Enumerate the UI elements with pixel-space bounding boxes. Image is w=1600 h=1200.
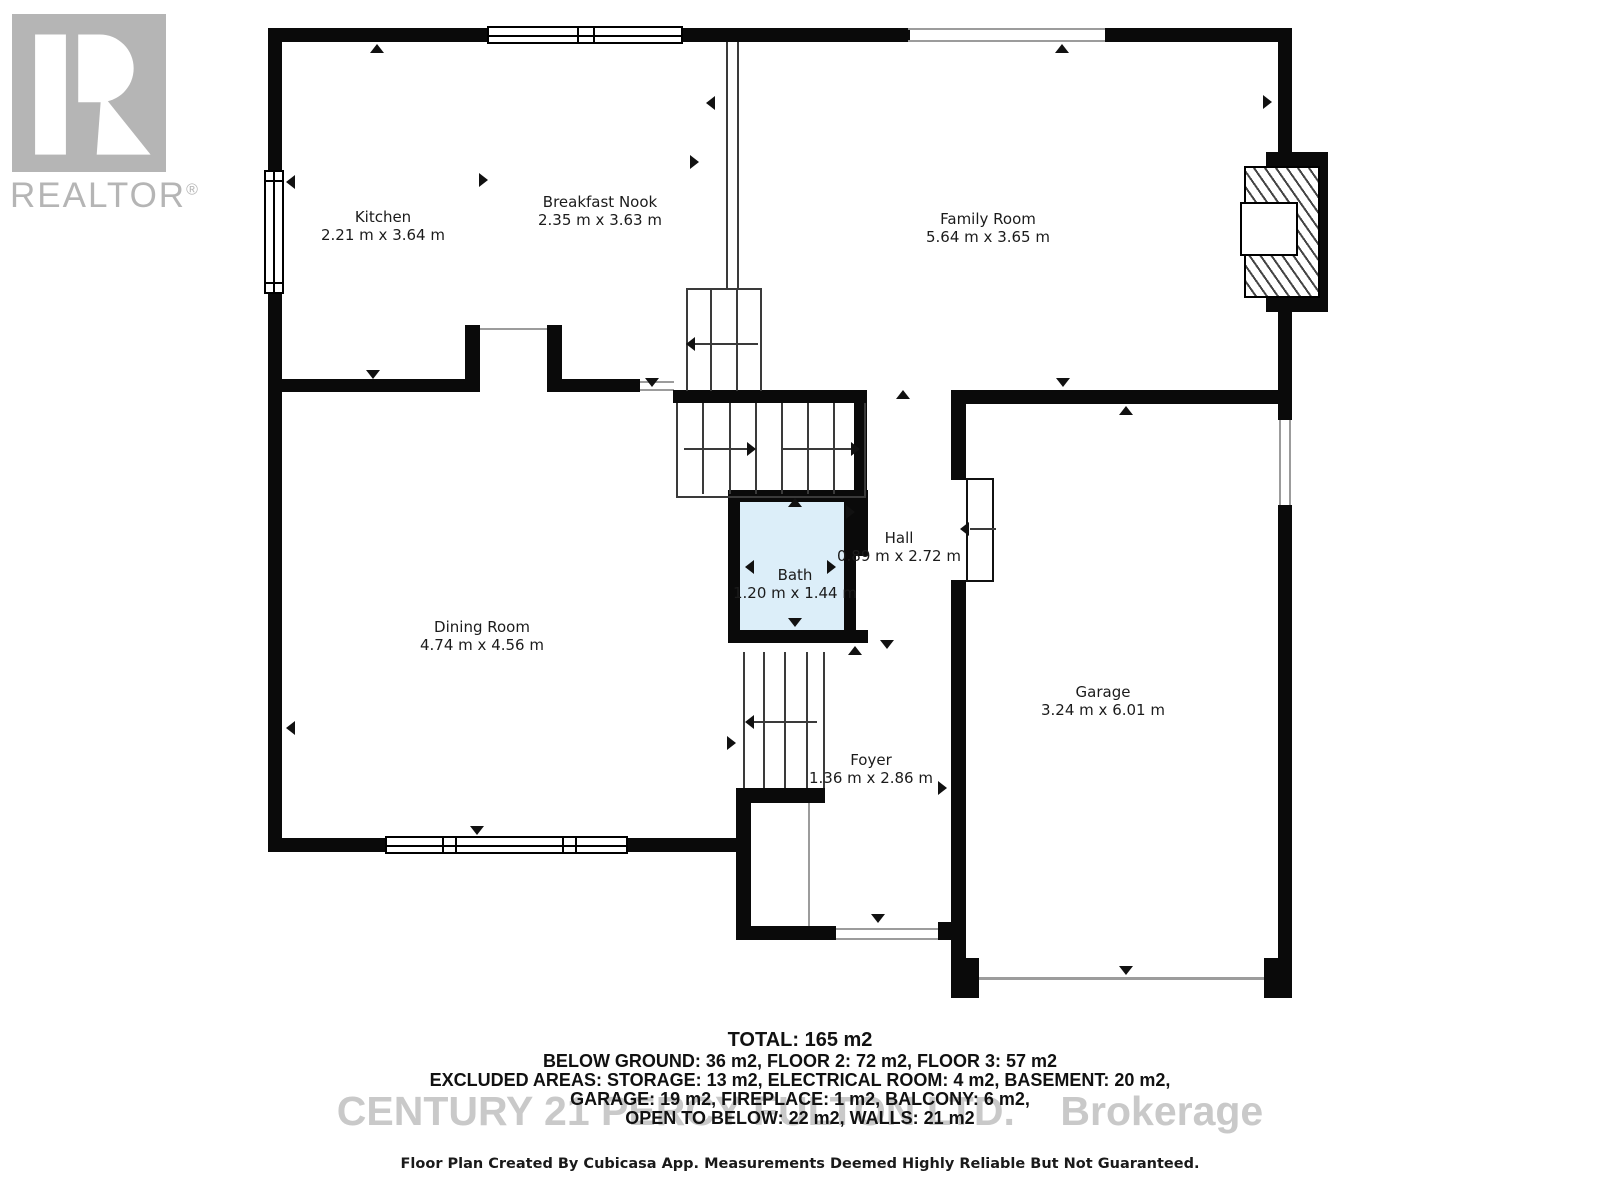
room-label-family-room: Family Room 5.64 m x 3.65 m [868, 210, 1108, 246]
wall-segment [1264, 958, 1292, 998]
room-name: Garage [983, 683, 1223, 701]
wall-segment [680, 28, 910, 42]
measure-arrow [370, 44, 384, 53]
opening-line [1289, 420, 1291, 505]
measure-arrow [286, 721, 295, 735]
opening-line [640, 389, 674, 391]
wall-segment [951, 390, 1292, 404]
stair-tread [710, 290, 712, 391]
room-label-bath: Bath 1.20 m x 1.44 m [675, 566, 915, 602]
measure-arrow [846, 505, 855, 519]
room-name: Breakfast Nook [480, 193, 720, 211]
wall-segment [951, 958, 979, 998]
door-jamb [465, 325, 480, 392]
room-label-breakfast-nook: Breakfast Nook 2.35 m x 3.63 m [480, 193, 720, 229]
room-dimensions: 2.35 m x 3.63 m [480, 211, 720, 229]
room-label-dining-room: Dining Room 4.74 m x 4.56 m [362, 618, 602, 654]
room-label-kitchen: Kitchen 2.21 m x 3.64 m [263, 208, 503, 244]
room-name: Bath [675, 566, 915, 584]
room-label-foyer: Foyer 1.36 m x 2.86 m [751, 751, 991, 787]
room-name: Family Room [868, 210, 1108, 228]
wall-segment [562, 379, 640, 392]
door-jamb [547, 325, 562, 392]
closet-line [808, 803, 810, 926]
summary-line: EXCLUDED AREAS: STORAGE: 13 m2, ELECTRIC… [0, 1071, 1600, 1090]
measure-arrow [788, 618, 802, 627]
room-dimensions: 4.74 m x 4.56 m [362, 636, 602, 654]
window-mullion [562, 838, 564, 852]
opening-line [480, 328, 547, 330]
wall-segment [736, 926, 836, 940]
stair-direction-line [684, 448, 747, 450]
measure-arrow [1055, 44, 1069, 53]
measure-arrow [788, 498, 802, 507]
room-name: Foyer [751, 751, 991, 769]
stair-tread [736, 290, 738, 391]
wall-segment [1105, 28, 1292, 42]
room-dimensions: 5.64 m x 3.65 m [868, 228, 1108, 246]
wall-segment [268, 838, 387, 852]
measure-arrow [690, 155, 699, 169]
wall-segment [268, 28, 282, 172]
window-mullion [593, 28, 595, 42]
front-door-line [836, 928, 938, 930]
front-door-line [836, 938, 938, 940]
stair-direction-arrow [747, 442, 756, 456]
summary-line: GARAGE: 19 m2, FIREPLACE: 1 m2, BALCONY:… [0, 1090, 1600, 1109]
measure-arrow [706, 96, 715, 110]
opening-line [908, 28, 1105, 30]
window-mullion [266, 180, 282, 182]
garage-door-line [979, 977, 1264, 980]
stair-direction-line [753, 721, 817, 723]
window-mullion [575, 838, 577, 852]
room-dimensions: 3.24 m x 6.01 m [983, 701, 1223, 719]
floor-plan-page: REALTOR® [0, 0, 1600, 1200]
measure-arrow [1119, 966, 1133, 975]
summary-line: BELOW GROUND: 36 m2, FLOOR 2: 72 m2, FLO… [0, 1052, 1600, 1071]
room-name: Kitchen [263, 208, 503, 226]
window-mullion [442, 838, 444, 852]
stair-direction-line [783, 448, 851, 450]
stairs-upper-flight [686, 288, 762, 391]
measure-arrow [1056, 378, 1070, 387]
measure-arrow [645, 378, 659, 387]
window-line [489, 35, 681, 37]
wall-segment [1278, 28, 1292, 154]
room-label-hall: Hall 0.89 m x 2.72 m [779, 529, 1019, 565]
wall-segment [951, 580, 966, 998]
room-dimensions: 0.89 m x 2.72 m [779, 547, 1019, 565]
stair-direction-arrow [745, 715, 754, 729]
measure-arrow [896, 390, 910, 399]
wall-segment [268, 379, 465, 392]
measure-arrow [366, 370, 380, 379]
room-dimensions: 2.21 m x 3.64 m [263, 226, 503, 244]
window [385, 836, 628, 854]
window-mullion [455, 838, 457, 852]
stair-railing [726, 42, 728, 290]
stairs-main-flight [676, 403, 866, 498]
room-label-garage: Garage 3.24 m x 6.01 m [983, 683, 1223, 719]
measure-arrow [286, 175, 295, 189]
window [487, 26, 683, 44]
wall-segment [627, 838, 737, 852]
wall-segment [736, 788, 825, 803]
measure-arrow [871, 914, 885, 923]
measure-arrow [479, 173, 488, 187]
stair-direction-arrow [686, 337, 695, 351]
wall-segment [268, 28, 490, 42]
measure-arrow [1119, 406, 1133, 415]
opening-line [908, 40, 1105, 42]
registered-mark: ® [186, 181, 200, 198]
window-mullion [266, 282, 282, 284]
fireplace-insert [1240, 202, 1298, 256]
summary-line: OPEN TO BELOW: 22 m2, WALLS: 21 m2 [0, 1109, 1600, 1128]
room-name: Hall [779, 529, 1019, 547]
measure-arrow [1263, 95, 1272, 109]
measure-arrow [848, 646, 862, 655]
window-mullion [577, 28, 579, 42]
measure-arrow [727, 736, 736, 750]
disclaimer-text: Floor Plan Created By Cubicasa App. Meas… [0, 1156, 1600, 1172]
measure-arrow [880, 640, 894, 649]
room-dimensions: 1.36 m x 2.86 m [751, 769, 991, 787]
total-area: TOTAL: 165 m2 [0, 1028, 1600, 1052]
wall-segment [938, 922, 951, 940]
realtor-logo-text: REALTOR® [10, 176, 230, 216]
realtor-r-glyph [12, 14, 166, 172]
room-dimensions: 1.20 m x 1.44 m [675, 584, 915, 602]
area-summary: TOTAL: 165 m2 BELOW GROUND: 36 m2, FLOOR… [0, 1028, 1600, 1128]
measure-arrow [470, 826, 484, 835]
stair-direction-line [694, 343, 758, 345]
wall-segment [736, 788, 751, 940]
window-line [387, 845, 626, 847]
stair-railing [737, 42, 739, 290]
stair-direction-arrow [851, 442, 860, 456]
wall-segment [673, 390, 867, 403]
opening-line [1279, 420, 1281, 505]
realtor-logo-icon [12, 14, 166, 172]
wall-segment [1278, 505, 1292, 980]
wall-segment [268, 292, 282, 838]
room-name: Dining Room [362, 618, 602, 636]
